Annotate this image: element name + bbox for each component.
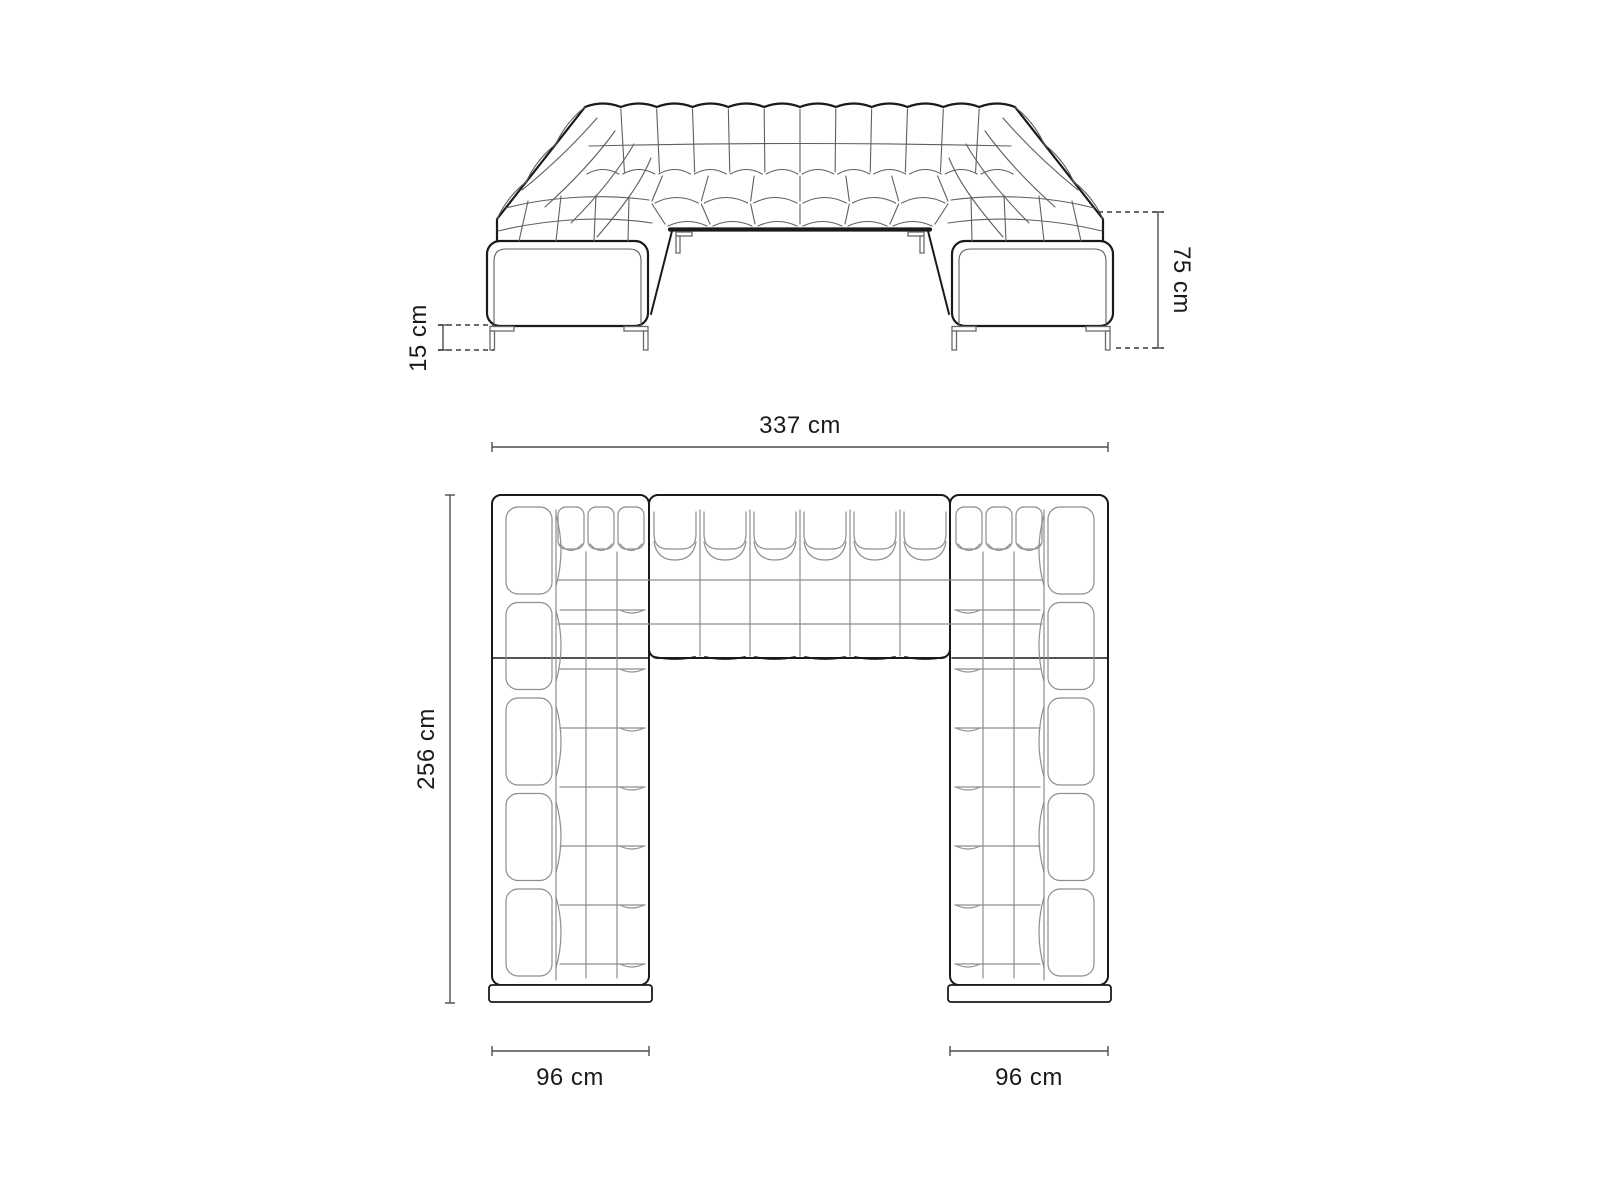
dimension-label-right-arm-width: 96 cm	[995, 1066, 1063, 1090]
dimension-label-total-width: 337 cm	[759, 414, 841, 438]
dimension-label-leg-height: 15 cm	[407, 304, 431, 372]
sofa-top-plan-view	[489, 495, 1111, 1002]
sofa-technical-drawing	[0, 0, 1600, 1200]
dimension-label-total-depth: 256 cm	[415, 708, 439, 790]
dimension-label-overall-height: 75 cm	[1169, 246, 1193, 314]
sofa-front-elevation-view	[487, 104, 1113, 351]
sofa-dimensions-diagram: 337 cm 256 cm 75 cm 15 cm 96 cm 96 cm	[0, 0, 1600, 1200]
dimension-label-left-arm-width: 96 cm	[536, 1066, 604, 1090]
